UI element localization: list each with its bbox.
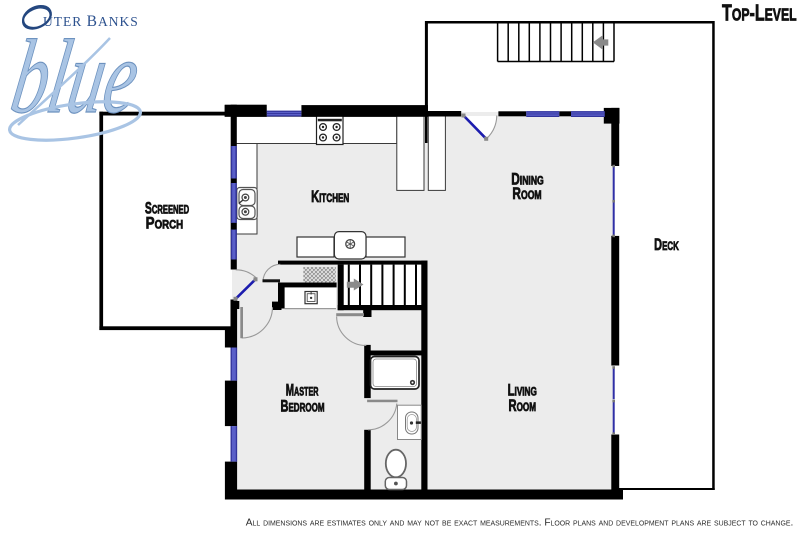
svg-text:All dimensions are estimates o: All dimensions are estimates only and ma… [246, 518, 794, 529]
svg-text:TOP-LEVEL: TOP-LEVEL [722, 1, 796, 27]
